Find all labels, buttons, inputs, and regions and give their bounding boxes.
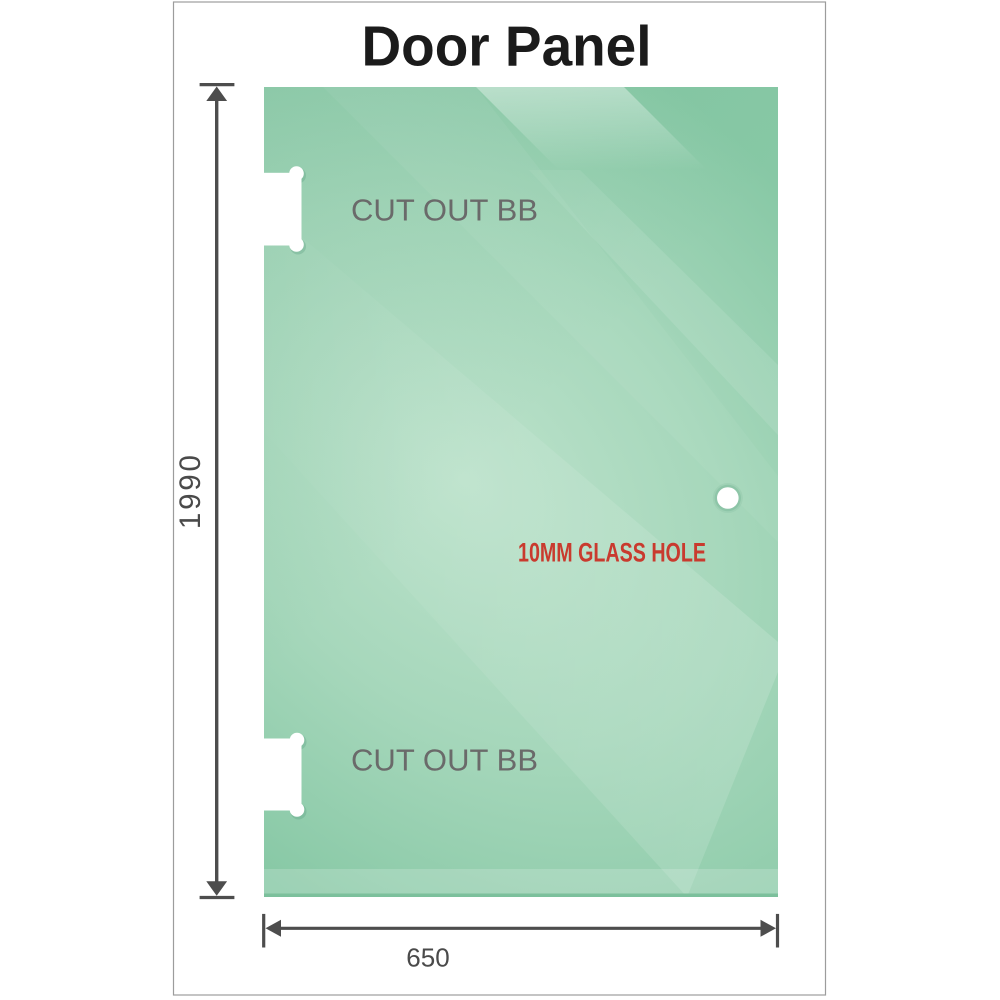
svg-text:CUT OUT BB: CUT OUT BB bbox=[351, 192, 538, 227]
svg-text:10MM GLASS HOLE: 10MM GLASS HOLE bbox=[518, 538, 706, 568]
svg-text:Door Panel: Door Panel bbox=[362, 15, 652, 79]
svg-text:1990: 1990 bbox=[174, 452, 207, 529]
svg-text:CUT OUT BB: CUT OUT BB bbox=[351, 742, 538, 777]
svg-text:650: 650 bbox=[406, 942, 449, 972]
